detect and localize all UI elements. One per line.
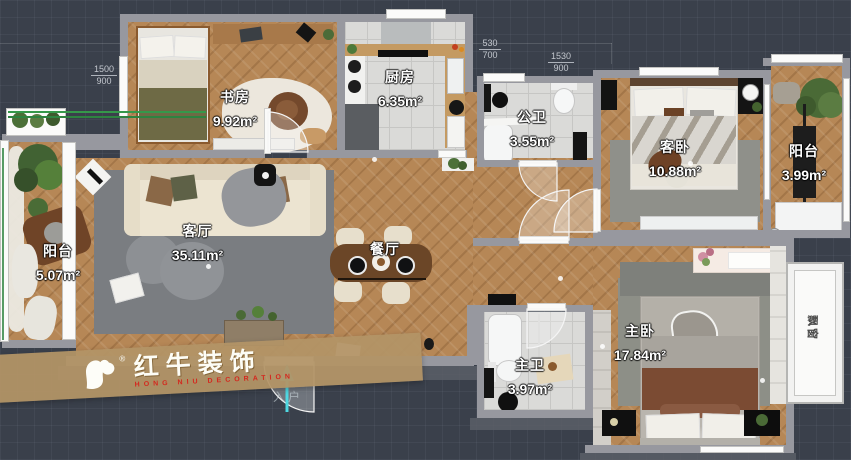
plant	[458, 161, 467, 170]
bed-pillow	[173, 35, 206, 59]
dimension-denominator: 900	[82, 76, 126, 87]
flowers	[702, 258, 710, 266]
wall-segment	[477, 305, 527, 312]
dimension-label: 530 700	[472, 38, 508, 61]
fridge	[447, 116, 465, 148]
cad-line	[611, 43, 612, 64]
nightstand	[602, 410, 636, 436]
table-runner-line	[338, 278, 426, 280]
downlight-dot	[372, 157, 377, 162]
door-leaf	[519, 160, 557, 167]
wall-segment	[593, 70, 601, 168]
corridor-floor	[473, 158, 593, 305]
room-label-kitchen: 厨房 6.35m²	[350, 66, 450, 114]
green-rail-line	[8, 111, 206, 113]
pendant-lamp	[742, 84, 759, 101]
wall-segment	[477, 410, 593, 418]
window	[386, 9, 446, 19]
room-name: 客厅	[183, 223, 213, 239]
room-area: 9.92m²	[213, 113, 257, 129]
wall-segment	[593, 230, 850, 238]
window	[771, 54, 843, 63]
room-label-master-bedroom: 主卧 17.84m²	[588, 320, 692, 368]
room-label-master-bath: 主卫 3.97m²	[480, 354, 580, 402]
guest-dresser	[601, 80, 617, 110]
spice-jar	[459, 47, 464, 52]
wall-segment	[2, 340, 76, 348]
wall-segment	[120, 150, 265, 158]
dimension-numerator: 1530	[548, 51, 574, 63]
room-area: 10.88m²	[649, 163, 701, 179]
plant	[752, 102, 762, 112]
room-area: 3.55m²	[510, 133, 554, 149]
room-name: 客卧	[660, 139, 690, 155]
dimension-label: 1500 900	[82, 64, 126, 87]
wall-segment	[601, 238, 786, 246]
wall-segment	[473, 238, 519, 246]
plant	[796, 96, 816, 116]
desk-leg	[803, 104, 806, 128]
ottoman	[300, 128, 326, 144]
room-label-living-room: 客厅 35.11m²	[145, 220, 250, 268]
hall-strip-floor	[465, 92, 477, 158]
floor-plan-canvas: 书房 9.92m² 厨房 6.35m² 公卫 3.55m² 客卧 10.88m²…	[0, 0, 851, 460]
room-label-balcony-left: 阳台 5.07m²	[8, 240, 108, 288]
wall-segment	[467, 305, 477, 365]
room-area: 6.35m²	[378, 93, 422, 109]
registered-mark: ®	[119, 354, 125, 363]
plant	[12, 112, 28, 128]
low-cabinet	[640, 216, 758, 230]
dimension-numerator: 1500	[91, 64, 117, 76]
herb-plant	[347, 44, 357, 54]
shelf-pillow	[728, 252, 772, 269]
wardrobe	[770, 246, 786, 404]
dimension-denominator: 900	[540, 63, 582, 74]
plant	[818, 92, 844, 118]
room-name: 主卧	[625, 323, 655, 339]
guest-headboard	[630, 78, 738, 86]
room-name: 阳台	[43, 243, 73, 259]
room-label-study: 书房 9.92m²	[180, 86, 290, 134]
wall-segment	[74, 134, 120, 150]
wall-segment	[337, 14, 345, 158]
tripod-lamp	[424, 338, 434, 350]
dining-chair	[334, 280, 362, 302]
wall-segment	[477, 160, 519, 167]
exterior-shadow	[580, 453, 796, 460]
room-label-dining-room: 餐厅	[345, 238, 425, 262]
window	[639, 67, 719, 76]
room-area: 5.07m²	[36, 267, 80, 283]
sofa-pillow	[170, 174, 197, 201]
sofa-armrest	[310, 164, 326, 236]
study-cabinet	[213, 138, 295, 150]
plant	[268, 312, 277, 321]
room-name: 书房	[220, 89, 250, 105]
green-rail-line	[8, 116, 206, 118]
room-label-public-bath: 公卫 3.55m²	[482, 106, 582, 154]
bed-pillow	[139, 35, 174, 59]
plant	[34, 160, 64, 190]
room-label-guest-bedroom: 客卧 10.88m²	[622, 136, 728, 184]
sliding-door	[438, 150, 466, 158]
wall-segment	[786, 238, 794, 264]
dimension-numerator: 530	[479, 38, 500, 50]
room-label-balcony-right: 阳台 3.99m²	[754, 140, 851, 188]
nightstand-decor	[610, 418, 618, 426]
window	[483, 73, 525, 82]
door-leaf	[519, 236, 569, 244]
plant	[252, 306, 264, 318]
door-leaf	[593, 189, 601, 232]
bull-logo-icon	[77, 355, 121, 391]
dimension-label: 1530 900	[540, 51, 582, 74]
room-area: 3.99m²	[782, 167, 826, 183]
green-rail-line	[2, 148, 4, 340]
room-name: 阳台	[789, 143, 819, 159]
cooking-pot	[449, 100, 464, 115]
plant	[756, 414, 768, 426]
bed-pillow	[646, 413, 701, 441]
flowers	[706, 248, 714, 256]
door-leaf	[527, 303, 566, 311]
room-area: 35.11m²	[172, 247, 223, 263]
plant	[236, 310, 246, 320]
exterior-shadow	[470, 418, 598, 430]
room-name: 餐厅	[370, 241, 400, 257]
dimension-denominator: 700	[472, 50, 508, 61]
wall-segment	[593, 168, 601, 189]
room-label-bay-window: 飘窗	[805, 315, 821, 341]
tray-dish	[262, 172, 269, 179]
plant	[14, 168, 38, 192]
room-name: 厨房	[385, 69, 415, 85]
dining-chair	[382, 282, 410, 304]
window	[700, 446, 784, 453]
stone-decor	[773, 82, 800, 104]
entry-label: 入户	[256, 388, 320, 405]
cooktop	[378, 50, 428, 57]
room-area: 3.97m²	[508, 381, 552, 397]
plant	[46, 112, 60, 126]
bed-blanket	[139, 60, 207, 88]
plant	[323, 29, 334, 40]
downlight-dot	[558, 276, 563, 281]
spice-jar	[452, 44, 458, 50]
wall-segment	[786, 404, 794, 445]
wall-segment	[569, 238, 601, 246]
sofa-armrest	[124, 164, 140, 236]
downlight-dot	[760, 378, 765, 383]
room-name: 公卫	[517, 109, 547, 125]
room-name: 主卫	[515, 357, 545, 373]
room-area: 17.84m²	[614, 347, 666, 363]
